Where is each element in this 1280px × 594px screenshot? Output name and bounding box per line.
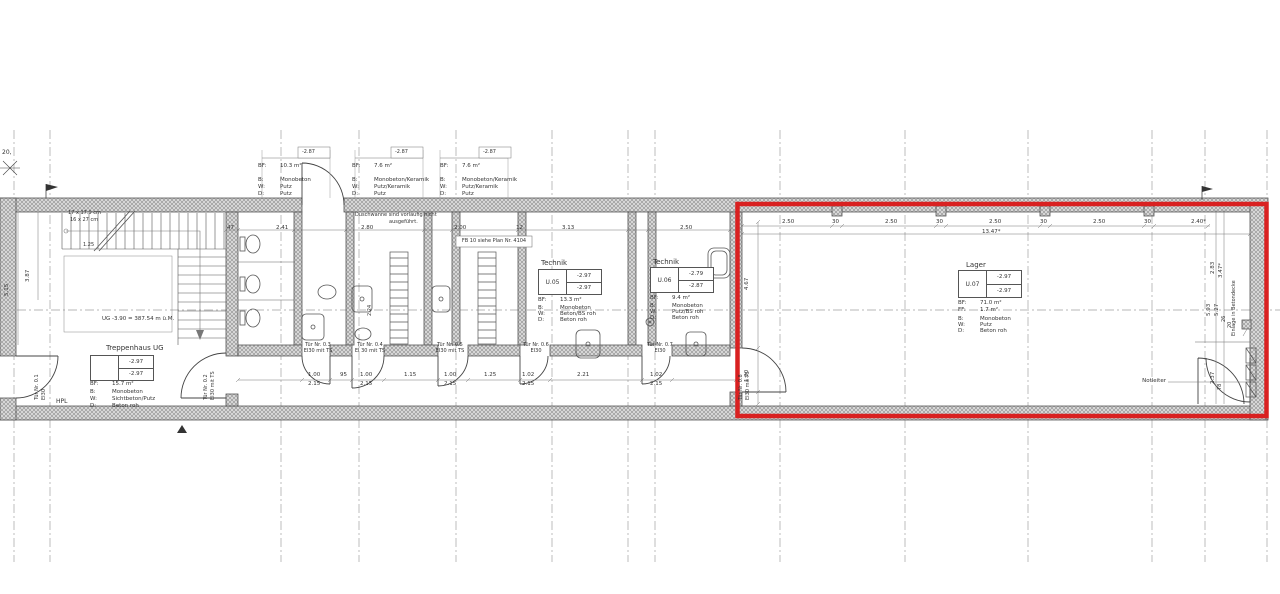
spec-value: Monobeton/Keramik xyxy=(462,177,517,183)
room-number: U.07 xyxy=(959,271,987,297)
dim-label: 1.15 xyxy=(404,372,416,378)
dim-label: 1.00 xyxy=(360,372,372,378)
dim-label: 4.67 xyxy=(744,278,750,290)
spec-value: 71.0 m² xyxy=(980,300,1002,306)
spec-key: D: xyxy=(258,191,264,197)
door-swings xyxy=(16,163,1250,404)
door-rating: EI30 mit TS xyxy=(294,348,342,354)
spec-key: W: xyxy=(258,184,265,190)
dim-label: 1.25 xyxy=(484,372,496,378)
plan-linework xyxy=(0,0,1280,594)
dim-label: 2.15 xyxy=(360,381,372,387)
spec-value: Putz/Keramik xyxy=(462,184,498,190)
equipment-panels xyxy=(1246,348,1256,397)
spec-key: D: xyxy=(538,317,544,323)
dim-label: 20 xyxy=(1227,322,1233,328)
dim-label: 5.27 xyxy=(1214,304,1220,316)
spec-key: BF: xyxy=(650,295,658,301)
note-shower-line1: Duschwanne sind vorläufig nicht xyxy=(355,212,437,218)
ladders xyxy=(390,252,496,344)
dim-label: 1.02 xyxy=(650,372,662,378)
dim-label: 2.15 xyxy=(522,381,534,387)
room-elev-bottom: -2.97 xyxy=(119,369,153,381)
elev-label: -2.87 xyxy=(395,149,408,155)
spec-value: Sichtbeton/Putz xyxy=(112,396,155,402)
partitions xyxy=(238,262,1250,342)
spec-value: 9.4 m² xyxy=(672,295,690,301)
door-label-0-7: Tür Nr. 0.7 EI30 xyxy=(636,342,684,354)
spec-value: Beton roh xyxy=(560,317,587,323)
spec-value: Monobeton xyxy=(112,389,143,395)
room-elev-bottom: -2.87 xyxy=(679,281,713,293)
room-number: U.06 xyxy=(651,268,679,292)
dimension-lines xyxy=(18,147,1252,406)
spec-key: B: xyxy=(258,177,264,183)
spec-value: Putz xyxy=(462,191,474,197)
room-number xyxy=(91,356,119,380)
room-title-lager: Lager xyxy=(966,261,986,269)
spec-key: D: xyxy=(440,191,446,197)
spec-value: 10.3 m² xyxy=(280,163,302,169)
room-title-treppenhaus: Treppenhaus UG xyxy=(106,344,164,352)
dim-label: 2.50 xyxy=(1093,219,1105,225)
dim-label: 2.40* xyxy=(1191,219,1206,225)
spec-key: D: xyxy=(90,403,96,409)
floor-plan-canvas: 20, -2.87 BF: 10.3 m² B: Monobeton W: Pu… xyxy=(0,0,1280,594)
spec-key: W: xyxy=(352,184,359,190)
room-elev-bottom: -2.97 xyxy=(567,283,601,295)
note-hpl: HPL xyxy=(56,398,67,405)
corner-label: 20, xyxy=(2,149,12,156)
dim-total-label: 13.47* xyxy=(982,229,1001,235)
spec-value: 7.6 m² xyxy=(374,163,392,169)
spec-value: Putz xyxy=(280,191,292,197)
spec-value: 7.6 m² xyxy=(462,163,480,169)
door-rating-0-2: EI30 mit TS xyxy=(210,371,216,400)
dim-label: 95 xyxy=(340,372,347,378)
dim-label: 3.87 xyxy=(25,270,31,282)
dim-label: 2.50 xyxy=(680,225,692,231)
spec-value: 1.7 m² xyxy=(980,307,998,313)
dim-label: 2.21 xyxy=(577,372,589,378)
dim-label: 5.15 xyxy=(4,284,10,296)
door-label-0-6: Tür Nr. 0.6 EI30 xyxy=(512,342,560,354)
dim-label: 2.15 xyxy=(444,381,456,387)
dim-label: 30 xyxy=(832,219,839,225)
dim-label: 2.41 xyxy=(276,225,288,231)
survey-markers xyxy=(0,161,1213,433)
spec-value: Putz/Keramik xyxy=(374,184,410,190)
dim-label: 3.47* xyxy=(1218,263,1224,278)
spec-key: B: xyxy=(440,177,446,183)
dim-label: 2.15 xyxy=(650,381,662,387)
dim-label: 1.02 xyxy=(522,372,534,378)
dim-label: 1.20 xyxy=(744,370,750,382)
spec-value: Beton roh xyxy=(672,315,699,321)
note-fb: FB 10 siehe Plan Nr. 4104 xyxy=(456,238,532,244)
dim-label: 3.13 xyxy=(562,225,574,231)
dim-label: 2.50 xyxy=(782,219,794,225)
door-rating: EI30 xyxy=(512,348,560,354)
dim-label: 47 xyxy=(227,225,234,231)
door-label-0-3: Tür Nr. 0.3 EI30 mit TS xyxy=(294,342,342,354)
spec-value: Monobeton xyxy=(280,177,311,183)
room-elev-bottom: -2.97 xyxy=(987,285,1021,298)
dim-label: 30 xyxy=(936,219,943,225)
spec-value: 13.3 m² xyxy=(560,297,582,303)
dim-label: 1.00 xyxy=(308,372,320,378)
dim-label: 12 xyxy=(516,225,523,231)
spec-key: FF: xyxy=(958,307,966,313)
room-elev-top: -2.79 xyxy=(679,268,713,281)
spec-key: BF: xyxy=(258,163,266,169)
stair xyxy=(62,211,226,345)
elev-label: -2.87 xyxy=(483,149,496,155)
spec-value: Beton roh xyxy=(112,403,139,409)
highlight-rectangle xyxy=(738,204,1267,416)
spec-key: D: xyxy=(352,191,358,197)
dim-label: 2.00 xyxy=(454,225,466,231)
spec-value: Beton roh xyxy=(980,328,1007,334)
room-tag-u07: U.07 -2.97 -2.97 xyxy=(958,270,1022,298)
dim-label: 1.00 xyxy=(444,372,456,378)
dim-label: 2.24 xyxy=(367,305,373,316)
spec-key: B: xyxy=(352,177,358,183)
dim-label: 30 xyxy=(1144,219,1151,225)
room-tag-treppenhaus: -2.97 -2.97 xyxy=(90,355,154,381)
spec-key: BF: xyxy=(440,163,448,169)
spec-key: BF: xyxy=(958,300,966,306)
dim-label: 5.93 xyxy=(1206,304,1212,316)
note-level: UG -3.90 = 387.54 m ü.M. xyxy=(102,316,174,322)
door-rating: EI 30 mit TS xyxy=(346,348,394,354)
elev-label: -2.87 xyxy=(302,149,315,155)
door-rating: EI30 mit TS xyxy=(426,348,474,354)
spec-key: D: xyxy=(958,328,964,334)
room-elev-top: -2.97 xyxy=(119,356,153,369)
dim-label: 78 xyxy=(1217,384,1223,390)
dim-label: 1.25 xyxy=(83,242,94,248)
room-elev-top: -2.97 xyxy=(987,271,1021,285)
note-notleiter: Notleiter xyxy=(1128,378,1166,384)
door-label-0-5: Tür Nr. 0.5 EI30 mit TS xyxy=(426,342,474,354)
spec-key: BF: xyxy=(538,297,546,303)
spec-value: Putz xyxy=(280,184,292,190)
door-rating-0-1: EI30 xyxy=(41,389,47,400)
dim-label: 2.50 xyxy=(885,219,897,225)
room-number: U.05 xyxy=(539,270,567,294)
room-title-technik-u06: Technik xyxy=(653,258,679,266)
room-tag-u05: U.05 -2.97 -2.97 xyxy=(538,269,602,295)
walls xyxy=(0,198,1268,420)
spec-key: W: xyxy=(90,396,97,402)
room-elev-top: -2.97 xyxy=(567,270,601,283)
dim-label: 2.50 xyxy=(989,219,1001,225)
spec-key: BF: xyxy=(90,381,98,387)
spec-value: 15.7 m² xyxy=(112,381,134,387)
spec-key: D: xyxy=(650,315,656,321)
note-shower-line2: ausgeführt. xyxy=(389,219,418,225)
spec-key: W: xyxy=(440,184,447,190)
spec-key: B: xyxy=(90,389,96,395)
door-rating: EI30 xyxy=(636,348,684,354)
dim-label: 30 xyxy=(1040,219,1047,225)
note-stair-steps-1: 17 x 17.9 cm xyxy=(68,210,101,216)
room-tag-u06: U.06 -2.79 -2.87 xyxy=(650,267,714,293)
door-label-0-1: Tür Nr. 0.1 xyxy=(34,374,40,400)
note-stair-steps-2: 16 x 27 cm xyxy=(70,217,98,223)
door-label-0-2: Tür Nr. 0.2 xyxy=(203,374,209,400)
spec-value: Putz xyxy=(374,191,386,197)
room-title-technik-u05: Technik xyxy=(541,259,567,267)
dim-label: 2.15 xyxy=(308,381,320,387)
spec-value: Monobeton/Keramik xyxy=(374,177,429,183)
dim-label: 2.37 xyxy=(1210,372,1216,384)
door-label-0-4: Tür Nr. 0.4 EI 30 mit TS xyxy=(346,342,394,354)
spec-key: BF: xyxy=(352,163,360,169)
dim-label: 2.83 xyxy=(1210,262,1216,274)
dim-label: 2.80 xyxy=(361,225,373,231)
